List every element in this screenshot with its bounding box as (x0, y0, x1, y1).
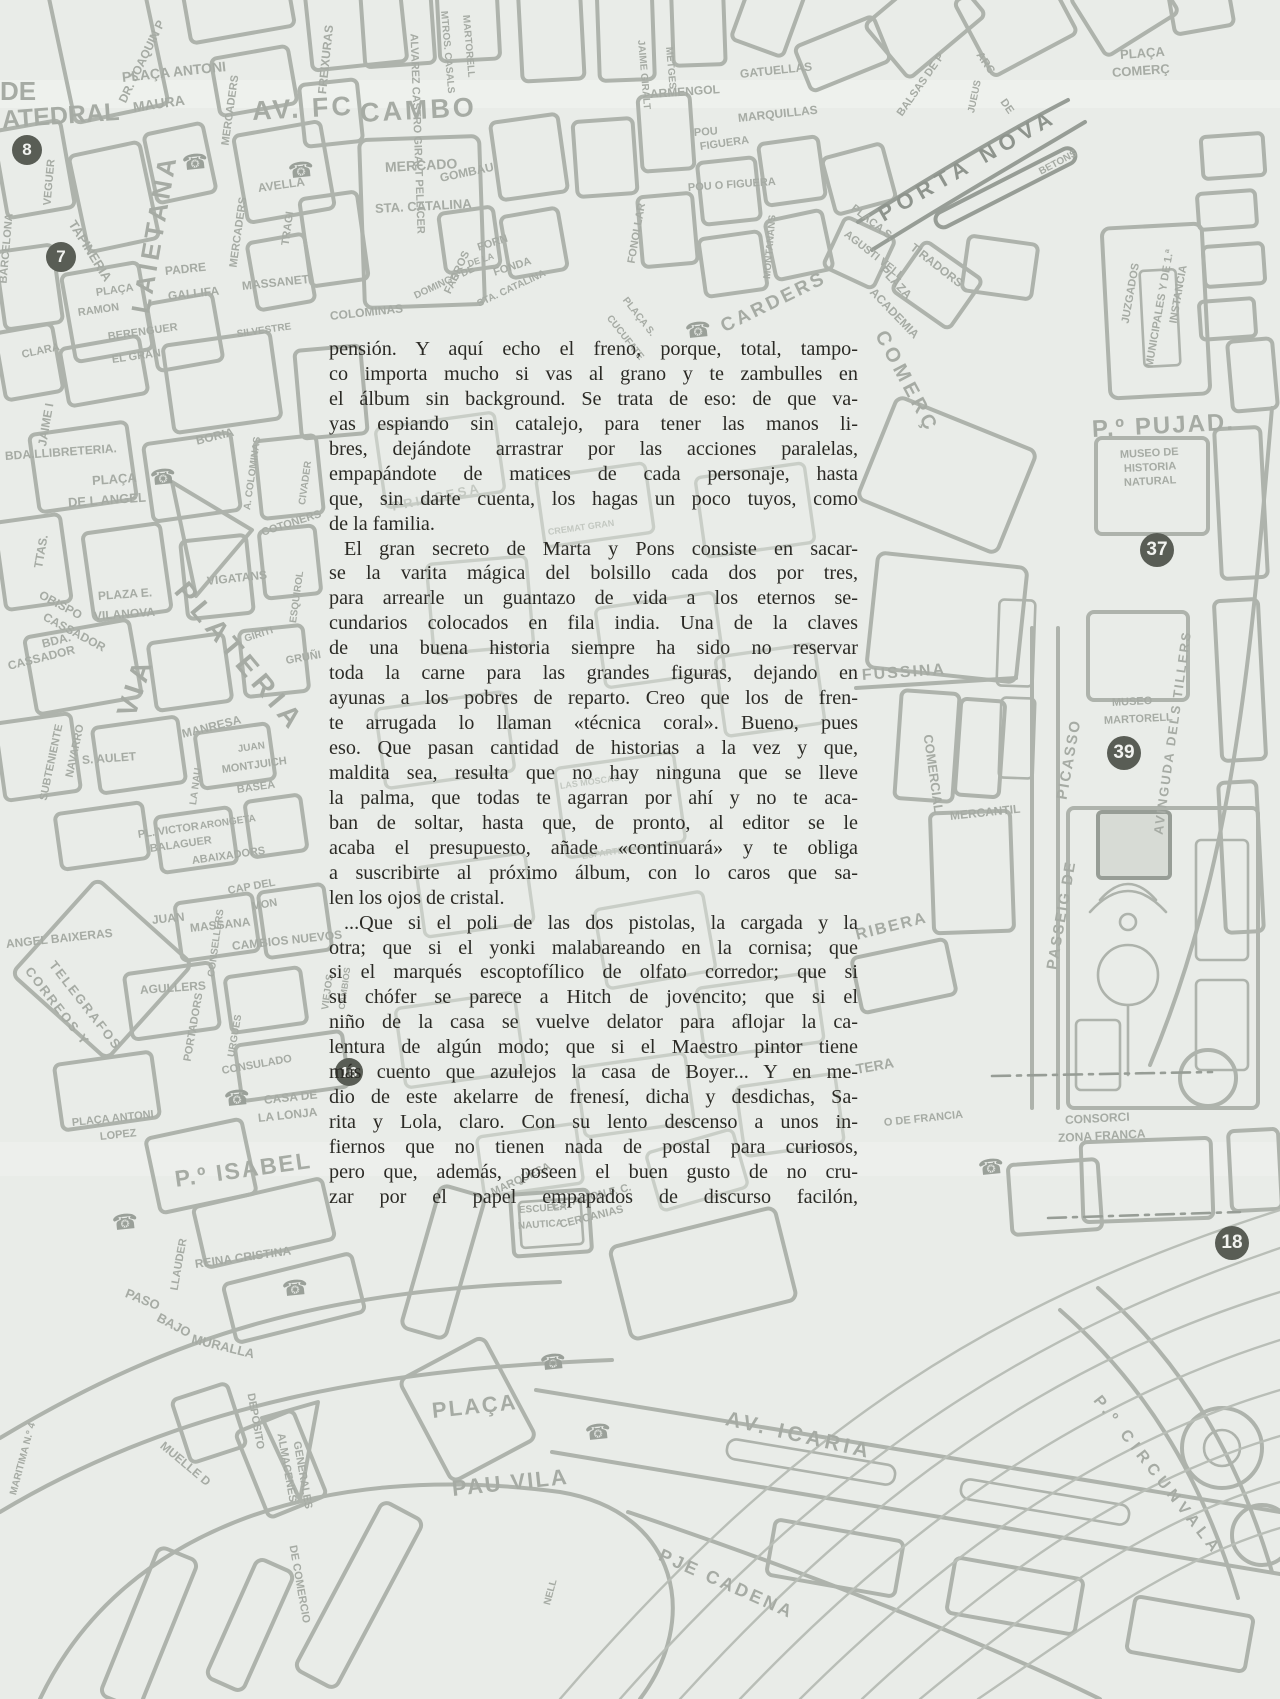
map-street-label: COLOMINAS (329, 302, 403, 322)
text-line: ...Que si el poli de las dos pistolas, l… (329, 911, 858, 936)
map-street-label: BERENGUER (107, 322, 178, 343)
map-street-label: STA. CATALINA (476, 269, 548, 310)
map-street-label: SUBTENIENTE (39, 723, 66, 801)
telephone-icon: ☎ (977, 1154, 1006, 1182)
map-street-label: S. AULET (82, 750, 137, 766)
map-number-badge: 8 (12, 135, 42, 165)
map-street-label: CAMBIOS NUEVOS (231, 928, 342, 952)
map-street-label: ABAIXADORS (191, 846, 266, 867)
map-street-label: TIRADORS (908, 241, 965, 289)
text-line: de la familia. (329, 512, 858, 537)
paragraph: El gran secreto de Marta y Pons consiste… (329, 537, 858, 911)
map-street-label: CLARA (21, 342, 61, 361)
map-street-label: TERA (855, 1055, 895, 1075)
map-street-label: BORIA (195, 426, 235, 447)
map-street-label: POU (694, 126, 719, 139)
text-line: pero que, además, poseen el buen gusto d… (329, 1160, 858, 1185)
map-street-label: MAURA (132, 93, 186, 114)
map-street-label: RAMON (77, 302, 120, 319)
map-street-label: PLAÇA (92, 471, 138, 487)
telephone-icon: ☎ (111, 1209, 140, 1237)
map-street-label: ARC (973, 50, 996, 76)
map-street-label: AV. FC (251, 93, 354, 125)
map-street-label: JUAN (151, 911, 185, 926)
map-street-label: ANGEL BAIXERAS (5, 927, 113, 950)
map-street-label: BALSAS DE P (895, 52, 946, 119)
map-street-label: FREIXURAS (316, 24, 335, 94)
text-line: empapándote de matices de cada personaje… (329, 462, 858, 487)
map-street-label: PJE CADENA (656, 1546, 797, 1622)
map-street-label: BARCELONA (0, 213, 16, 284)
text-line: bres, dejándote arrastrar por las accion… (329, 437, 858, 462)
map-street-label: CAP DEL (227, 878, 276, 897)
text-line: yas espiando sin catalejo, para tener la… (329, 412, 858, 437)
map-street-label: COMERCIAL (922, 734, 946, 814)
map-street-label: GIRITI (243, 626, 274, 645)
text-line: a suscribirte al próximo álbum, con lo c… (329, 861, 858, 886)
text-line: ban de soltar, hasta que, de pronto, al … (329, 811, 858, 836)
map-street-label: GALLIFA (167, 285, 219, 302)
map-street-label: METGES (663, 47, 677, 90)
map-street-label: PASO (124, 1286, 162, 1311)
map-street-label: REINA CRISTINA (194, 1245, 292, 1270)
map-street-label: BETONS (1038, 149, 1079, 177)
text-line: dio de este akelarre de frenesí, dicha y… (329, 1085, 858, 1110)
map-street-label: CARDERS (718, 269, 830, 336)
text-line: zar por el papel empapados de discurso f… (329, 1185, 858, 1210)
map-number-badge: 39 (1107, 736, 1141, 770)
map-street-label: MURALLA (190, 1332, 256, 1360)
map-street-label: DR. JOAQUIN P (117, 18, 167, 104)
map-street-label: PLAÇA (1120, 45, 1166, 61)
map-street-label: PLAÇA ANTONI (71, 1109, 154, 1129)
map-street-label: MASSANET (241, 273, 309, 292)
map-street-label: MERCADO (385, 156, 458, 174)
text-line: de una buena historia siempre ha sido no… (329, 636, 858, 661)
text-line: lentura de algún modo; que si el Maestro… (329, 1035, 858, 1060)
map-street-label: DEPOSITO (245, 1393, 266, 1451)
map-street-label: MUSEO DE (1120, 447, 1179, 461)
map-street-label: PLAZA E. (98, 586, 153, 602)
map-street-label: PORTADORS (183, 992, 206, 1062)
map-street-label: P.º ISABEL (173, 1149, 313, 1191)
map-street-label: DE COMERCIO (287, 1545, 312, 1625)
map-street-label: NELL (543, 1578, 559, 1606)
text-line: la palma, que todas te agarran por ahí y… (329, 786, 858, 811)
map-street-label: ARMENGOL (650, 83, 721, 100)
map-street-label: ATEDRAL (1, 100, 120, 133)
text-line: rita y Lola, claro. Con su lento descens… (329, 1110, 858, 1135)
map-street-label: JUEUS (967, 79, 984, 114)
map-street-label: JUZGADOS (1121, 262, 1142, 324)
text-line: acaba el presupuesto, añade «continuará»… (329, 836, 858, 861)
text-line: cundarios colocados en fila india. Una d… (329, 611, 858, 636)
map-street-label: AVINGUDA DELS TILLERS (1152, 630, 1194, 836)
map-street-label: ZONA FRANCA (1058, 1127, 1146, 1144)
map-street-label: URGUES (227, 1014, 244, 1058)
map-street-label: BDA.LLIBRETERIA. (5, 442, 118, 462)
text-line: ayunas a los pobres de reparto. Creo que… (329, 686, 858, 711)
paragraph: ...Que si el poli de las dos pistolas, l… (329, 911, 858, 1210)
map-street-label: MERCADERS (221, 75, 242, 147)
map-street-label: VIGATANS (206, 569, 267, 587)
map-street-label: LOPEZ (99, 1128, 137, 1143)
text-line: toda la carne para las grandes figuras, … (329, 661, 858, 686)
telephone-icon: ☎ (287, 157, 316, 185)
map-street-label: VEGUER (43, 159, 58, 206)
map-street-label: DE (0, 78, 36, 104)
map-street-label: GATUELLAS (739, 60, 812, 80)
text-line: se la varita mágica del bolsillo cada do… (329, 561, 858, 586)
map-street-label: LLAUDER (170, 1238, 190, 1292)
map-street-label: COTONERS (260, 509, 322, 539)
map-street-label: RIBERA (854, 910, 929, 943)
map-number-badge: 37 (1140, 533, 1174, 567)
map-street-label: TRAGI (281, 211, 297, 246)
telephone-icon: ☎ (584, 1419, 613, 1447)
map-street-label: P.º CIRCUNVALA (1090, 1393, 1224, 1559)
text-line: len los ojos de cristal. (329, 886, 858, 911)
map-street-label: O DE FRANCIA (883, 1110, 963, 1129)
map-street-label: EL GRAN (111, 348, 161, 366)
map-street-label: LA NAU (189, 767, 204, 805)
map-street-label: TTAS. (32, 534, 50, 569)
map-street-label: FUSSINA (861, 662, 946, 684)
map-street-label: MUELLE D (158, 1439, 213, 1488)
map-street-label: POU O FIGUERA (688, 177, 777, 194)
text-line: si el marqués escoptofílico de olfato co… (329, 960, 858, 985)
map-street-label: JAIME I (36, 402, 55, 447)
map-street-label: CIVADER (298, 460, 314, 505)
map-street-label: AV. ICARIA (724, 1408, 875, 1462)
text-line: maldita sea, resulta que no hay ninguna … (329, 761, 858, 786)
map-street-label: MONTANANS (763, 215, 779, 280)
map-street-label: PORTA NOVA (875, 105, 1061, 225)
map-street-label: NAUTICA (518, 1219, 564, 1232)
text-line: El gran secreto de Marta y Pons consiste… (329, 537, 858, 562)
map-street-label: COMERÇ (1112, 62, 1171, 79)
map-street-label: HISTORIA (1124, 461, 1177, 475)
map-street-label: MASSANA (189, 916, 251, 934)
text-line: pensión. Y aquí echo el freno, porque, t… (329, 337, 858, 362)
map-street-label: MUSEO (1112, 696, 1153, 709)
map-street-label: GRUÑI (285, 650, 322, 667)
map-street-label: COMERÇ (871, 327, 942, 436)
map-street-label: MARITIMA N.º 4 (9, 1422, 38, 1496)
text-line: otra; que si el yonki malabareando en la… (329, 936, 858, 961)
map-street-label: VILANOVA (94, 606, 156, 622)
map-street-label: DOMINGO DE (413, 265, 477, 302)
map-number-badge: 18 (1215, 1226, 1249, 1260)
telephone-icon: ☎ (223, 1085, 252, 1113)
text-line: fiernos que no tienen nada de postal par… (329, 1135, 858, 1160)
map-street-label: FONOLLAR (627, 202, 648, 264)
map-street-label: SILVESTRE (236, 322, 292, 340)
map-street-label: PLAÇA (431, 1391, 519, 1422)
map-street-label: PAU VILA (451, 1466, 570, 1500)
text-line: para arrearle un guantazo de vida a los … (329, 586, 858, 611)
map-street-label: MTROS. CASALS (438, 11, 455, 94)
telephone-icon: ☎ (181, 149, 210, 177)
map-street-label: BAJO (155, 1311, 193, 1339)
map-street-label: STA. CATALINA (375, 197, 472, 215)
map-street-label: MERCADERS (229, 197, 250, 269)
map-street-label: MERCANTIL (949, 803, 1021, 822)
text-line: eso. Que pasan cantidad de historias a l… (329, 736, 858, 761)
map-street-label: PASSEIG DE (1045, 859, 1079, 971)
text-line: que, sin darte cuenta, los hagas un poco… (329, 487, 858, 512)
map-street-label: P.º PUJAD. (1091, 411, 1235, 442)
map-street-label: MONTJUICH (221, 756, 287, 776)
telephone-icon: ☎ (149, 464, 178, 492)
map-street-label: BALAGUER (149, 835, 212, 855)
map-street-label: CASA DE (263, 1088, 318, 1106)
map-street-label: ESQUIROL (289, 571, 306, 624)
text-line: el álbum sin background. Se trata de eso… (329, 387, 858, 412)
telephone-icon: ☎ (281, 1275, 310, 1303)
article-text-column: pensión. Y aquí echo el freno, porque, t… (329, 337, 858, 1210)
map-street-label: NAVARRO (65, 724, 87, 779)
paragraph: pensión. Y aquí echo el freno, porque, t… (329, 337, 858, 537)
map-street-label: MARQUILLAS (737, 104, 818, 124)
map-street-label: BASEA (236, 780, 276, 796)
text-line: co importa mucho si vas al grano y te za… (329, 362, 858, 387)
map-street-label: NATURAL (1124, 475, 1177, 489)
text-line: niño de la casa se vuelve delator para a… (329, 1010, 858, 1035)
text-line: su chófer se parece a Hitch de jovencito… (329, 985, 858, 1010)
map-number-badge: 7 (46, 242, 76, 272)
map-street-label: VIA (113, 653, 159, 720)
map-street-label: JUAN (237, 741, 265, 755)
map-street-label: ARONGETA (199, 814, 256, 832)
map-street-label: MON (251, 898, 278, 913)
map-street-label: CASSADOR (7, 644, 77, 672)
map-street-label: ACADEMIA (868, 286, 922, 341)
map-street-label: MARTORELL (1104, 712, 1173, 727)
magazine-page: DEDR. JOAQUIN PPLAÇA ANTONIMAURAATEDRALA… (0, 0, 1280, 1699)
map-street-label: PADRE (164, 261, 206, 277)
text-line: más cuento que azulejos la casa de Boyer… (329, 1060, 858, 1085)
map-street-label: CONSULADO (221, 1054, 293, 1077)
text-line: te arrugada lo llaman «técnica coral». B… (329, 711, 858, 736)
map-street-label: MARTORELL (460, 15, 475, 78)
map-street-label: LA LONJA (257, 1106, 317, 1124)
map-street-label: FORN (476, 234, 509, 254)
map-street-label: JAIME GIRALT (635, 40, 651, 110)
map-street-label: DE L ANGEL (68, 491, 147, 509)
map-street-label: A. COLOMINAS (243, 436, 263, 511)
map-street-label: PICASSO (1055, 718, 1084, 801)
telephone-icon: ☎ (539, 1349, 568, 1377)
map-street-label: MANRESA (181, 714, 243, 740)
map-street-label: DE (997, 97, 1015, 116)
map-street-label: CONSORCI (1065, 1111, 1130, 1126)
